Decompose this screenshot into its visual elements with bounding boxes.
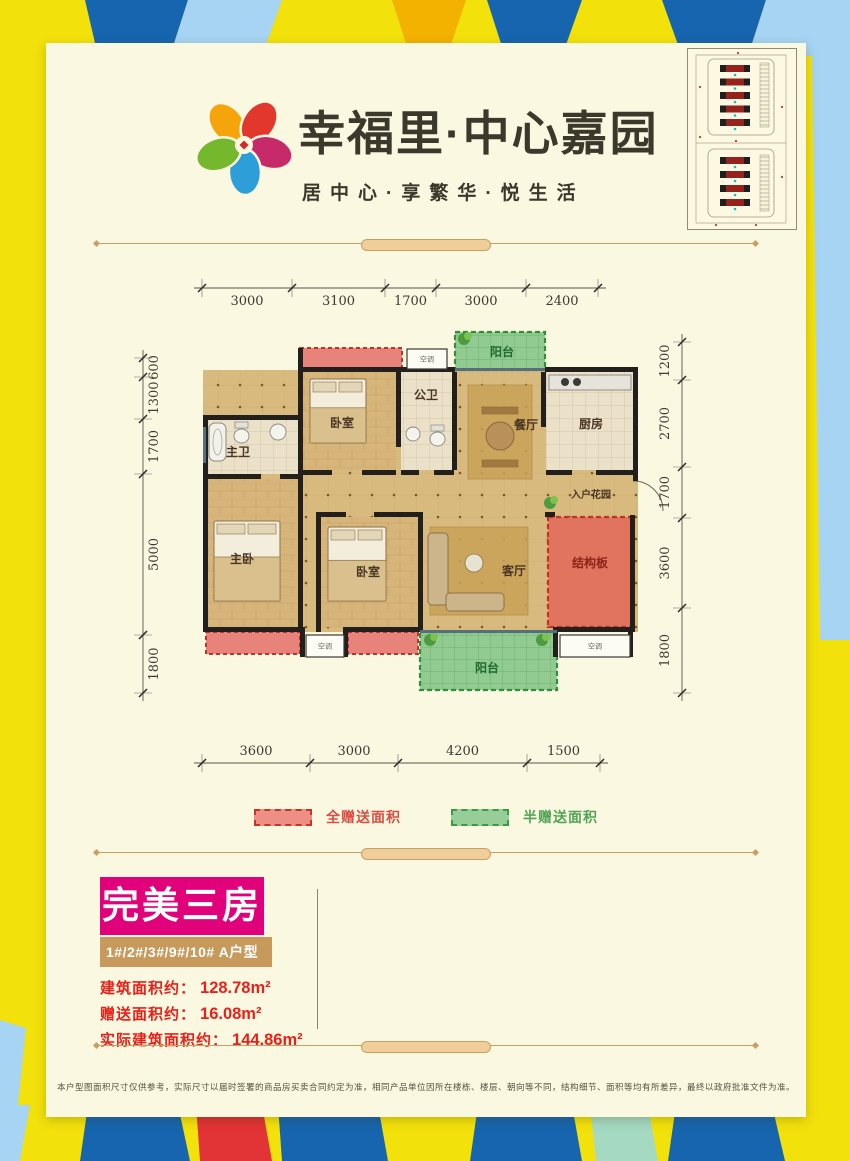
wall-segment (298, 470, 332, 475)
gift-area-line: 赠送面积约：16.08m² (100, 1003, 303, 1024)
divider-top (96, 243, 756, 244)
furniture-basin-icon (270, 424, 286, 440)
wall-segment (633, 367, 638, 481)
ac-unit-label: 空调 (588, 642, 602, 651)
furniture-tub-icon (209, 423, 226, 461)
ac-unit-label: 空调 (420, 355, 434, 364)
room-label-living: 客厅 (501, 563, 526, 578)
wall-segment (300, 627, 305, 657)
building-units-label: 1#/2#/3#/9#/10# A户型 (100, 937, 272, 967)
dim-value: 1200 (658, 344, 673, 377)
divider-bottom (96, 1045, 756, 1046)
legend-swatch-full-gift-icon (254, 809, 312, 826)
dim-value: 3600 (239, 744, 272, 759)
divider-middle (96, 852, 756, 853)
wall-segment (541, 372, 546, 427)
dim-value: 1800 (147, 647, 162, 680)
disclaimer-text: 本户型图面积尺寸仅供参考，实际尺寸以届时签署的商品房买卖合同约定为准，相同产品单… (46, 1081, 806, 1093)
legend: 全赠送面积 半赠送面积 (46, 807, 806, 827)
actual-area-line: 实际建筑面积约：144.86m² (100, 1029, 303, 1050)
room-label-bedroom-top: 卧室 (330, 415, 354, 430)
legend-label-half-gift: 半赠送面积 (523, 807, 598, 827)
dim-value: 2400 (545, 294, 578, 309)
gift-zone-full-1 (206, 632, 300, 654)
wall-segment (203, 627, 303, 632)
dim-value: 1500 (547, 744, 580, 759)
dim-value: 3600 (658, 546, 673, 579)
dim-value: 5000 (147, 538, 162, 571)
dim-value: 3100 (322, 294, 355, 309)
dim-value: 3000 (337, 744, 370, 759)
wall-segment (374, 512, 423, 517)
furniture-toilet-icon (430, 425, 445, 446)
room-structural (548, 517, 632, 627)
room-label-bath-master: 主卫 (226, 444, 250, 459)
dim-value: 1700 (394, 294, 427, 309)
window-line (203, 427, 206, 463)
dim-value: 3000 (464, 294, 497, 309)
window-line (455, 368, 545, 371)
room-label-balcony-bottom: 阳台 (475, 660, 499, 675)
brand-logo-flower-icon (192, 85, 296, 203)
wall-segment (545, 367, 638, 372)
furniture-counter-icon (549, 375, 631, 390)
dim-value: 3000 (230, 294, 263, 309)
furniture-bed-icon (310, 379, 366, 443)
floor-plan-drawing: 空调空调空调阳台卧室公卫餐厅厨房主卫入户花园主卧卧室客厅结构板阳台3000310… (130, 275, 710, 775)
wall-segment (418, 512, 423, 632)
dim-value: 1700 (147, 430, 162, 463)
dim-value: 1800 (658, 634, 673, 667)
furniture-bed-icon (328, 527, 386, 601)
area-figures: 建筑面积约：128.78m² 赠送面积约：16.08m² 实际建筑面积约：144… (100, 977, 303, 1055)
poster-card: 幸福里·中心嘉园 居中心·享繁华·悦生活 (46, 43, 806, 1117)
brand-title: 幸福里·中心嘉园 (298, 95, 686, 164)
wall-segment (298, 348, 303, 472)
furniture-basin-icon (406, 427, 420, 441)
dim-value: 4200 (446, 744, 479, 759)
wall-segment (298, 474, 303, 632)
dim-value: 2700 (658, 407, 673, 440)
dim-value: 1700 (658, 476, 673, 509)
wall-segment (316, 512, 321, 632)
window-line (420, 630, 557, 633)
dim-value: 1300 (147, 381, 162, 414)
wall-segment (546, 470, 572, 475)
gift-zone-full-2 (348, 632, 418, 654)
wall-segment (362, 470, 396, 475)
wall-segment (596, 470, 636, 475)
flyer-page: 幸福里·中心嘉园 居中心·享繁华·悦生活 (0, 0, 850, 1161)
wall-segment (280, 474, 300, 479)
furniture-toilet-icon (234, 422, 249, 443)
wall-segment (203, 474, 261, 479)
wall-segment (434, 470, 454, 475)
room-label-dining: 餐厅 (514, 417, 538, 432)
room-bath-public (401, 372, 452, 470)
wall-segment (401, 470, 419, 475)
wall-segment (345, 627, 423, 632)
dimension-chain-left: 6001300170050001800 (134, 350, 162, 701)
vertical-rule (317, 889, 318, 1029)
dim-value: 600 (147, 355, 162, 380)
legend-swatch-half-gift-icon (451, 809, 509, 826)
ac-unit-label: 空调 (318, 642, 332, 651)
room-label-kitchen: 厨房 (579, 416, 603, 431)
legend-label-full-gift: 全赠送面积 (326, 807, 401, 827)
brand-title-block: 幸福里·中心嘉园 居中心·享繁华·悦生活 (298, 95, 686, 205)
site-plan-map (686, 47, 798, 231)
brand-slogan: 居中心·享繁华·悦生活 (298, 178, 686, 205)
room-label-balcony-top: 阳台 (490, 344, 514, 359)
dimension-chain-bottom: 3600300042001500 (194, 744, 608, 772)
wall-segment (203, 415, 300, 420)
room-label-bath-public: 公卫 (414, 388, 438, 402)
gift-zone-full-0 (300, 348, 402, 370)
unit-type-title: 完美三房 (100, 877, 264, 935)
dimension-chain-right: 12002700170036001800 (658, 334, 691, 701)
wall-segment (452, 372, 457, 470)
room-label-structural: 结构板 (572, 555, 609, 570)
room-label-entry-garden: 入户花园 (571, 488, 611, 501)
room-label-master-bedroom: 主卧 (230, 551, 254, 566)
dimension-chain-top: 30003100170030002400 (194, 279, 606, 309)
wall-segment (396, 372, 401, 447)
wall-segment (630, 515, 635, 632)
wall-segment (545, 512, 555, 517)
room-label-bedroom-2: 卧室 (356, 564, 380, 579)
built-area-line: 建筑面积约：128.78m² (100, 977, 303, 998)
wall-segment (557, 627, 633, 632)
